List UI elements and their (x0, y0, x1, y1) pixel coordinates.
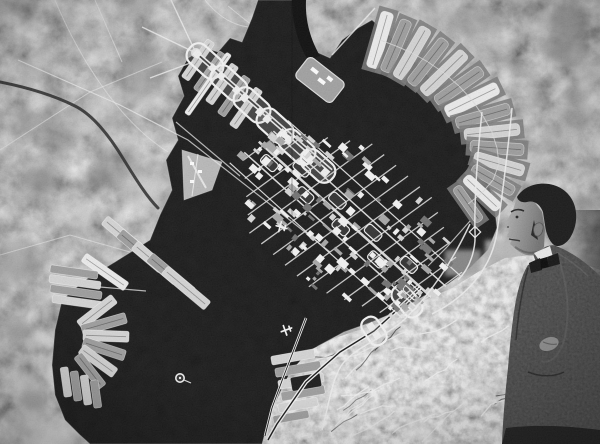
scene-svg (0, 0, 600, 444)
vignette (0, 0, 600, 444)
photograph-tokyo-bay-plan (0, 0, 600, 444)
